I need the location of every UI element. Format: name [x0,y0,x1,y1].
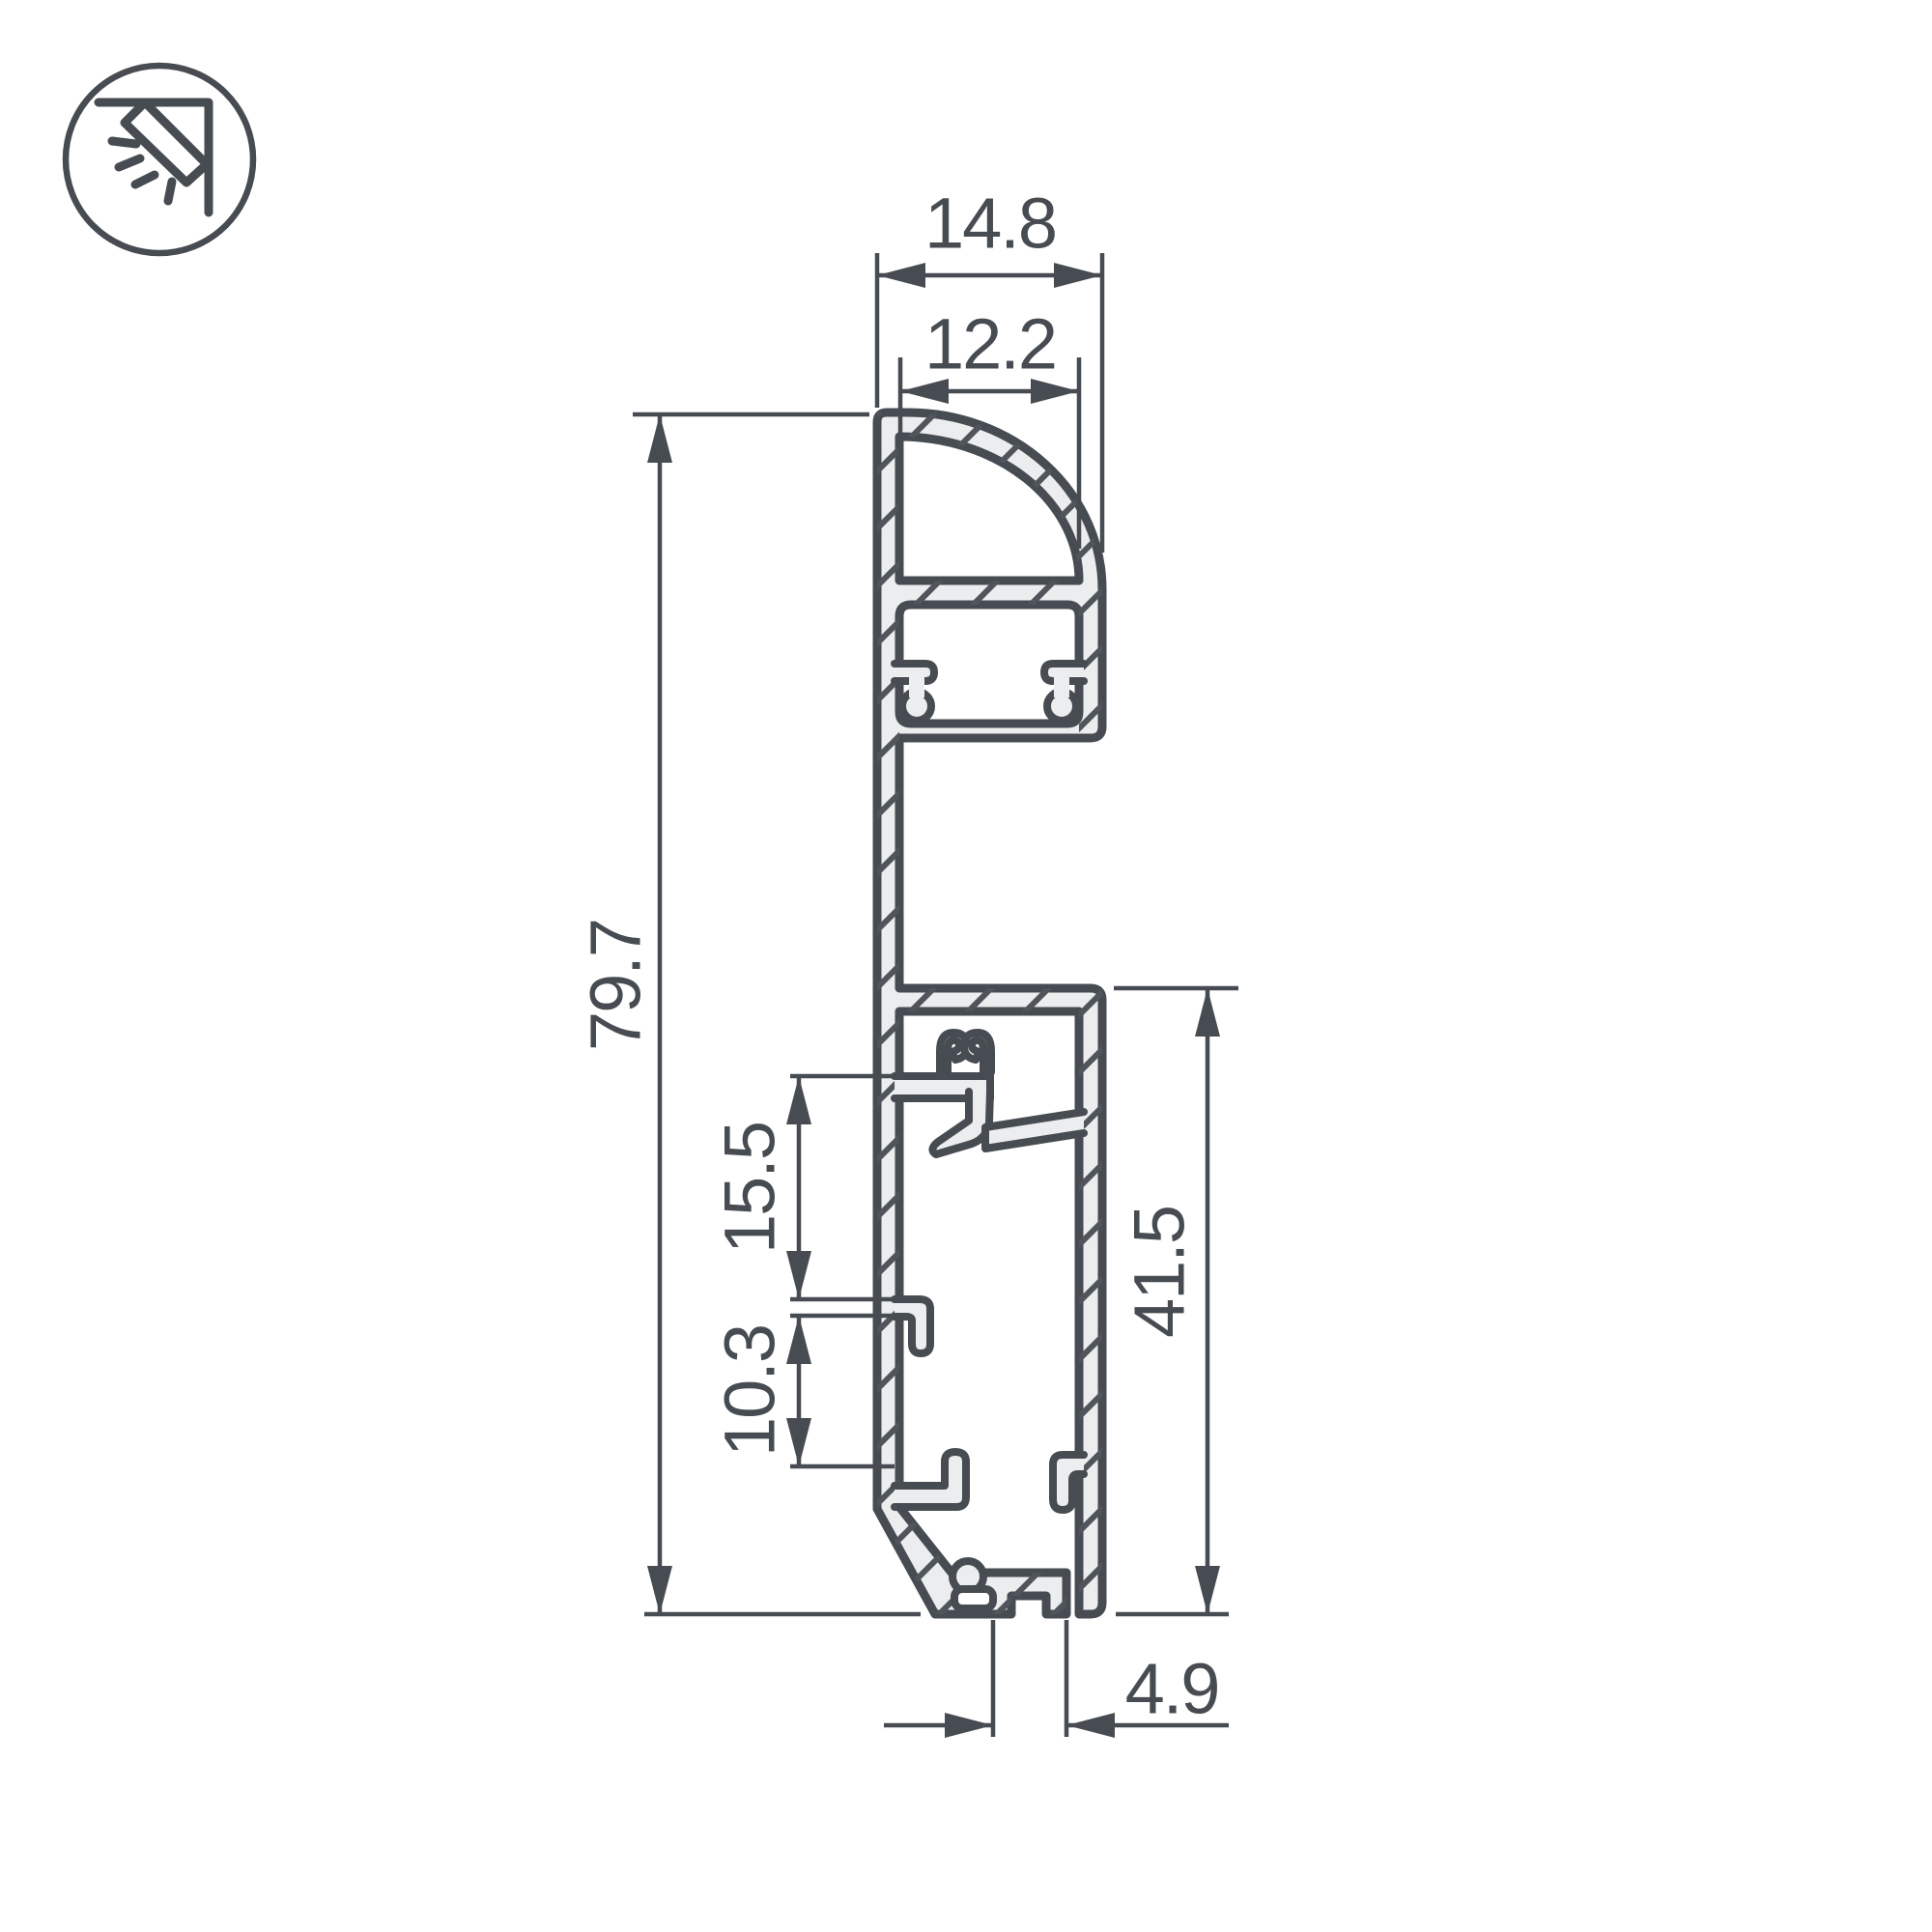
dimension-label-visor-width: 12.2 [924,303,1056,385]
dimension-label-slot-width: 4.9 [1125,1648,1219,1730]
recessed-corner-light-icon [66,66,253,253]
dimension-label-base-height: 41.5 [1119,1207,1201,1338]
dimension-label-clip-lower: 10.3 [709,1325,791,1457]
dimension-label-clip-upper: 15.5 [709,1122,791,1254]
profile-internal-features [895,664,1084,1608]
dimension-label-overall-width: 14.8 [924,183,1056,265]
wall-hook-lower [895,1452,966,1507]
drawing-canvas: 14.8 12.2 79.7 15.5 10.3 41.5 4.9 [0,0,1932,1932]
foot-pocket [954,1589,993,1608]
profile-drawing-svg [0,0,1932,1932]
clip-web [985,1112,1084,1149]
clip-finger-right [964,1033,991,1072]
profile-cross-section [877,412,1102,1614]
dimension-label-overall-height: 79.7 [575,920,657,1051]
